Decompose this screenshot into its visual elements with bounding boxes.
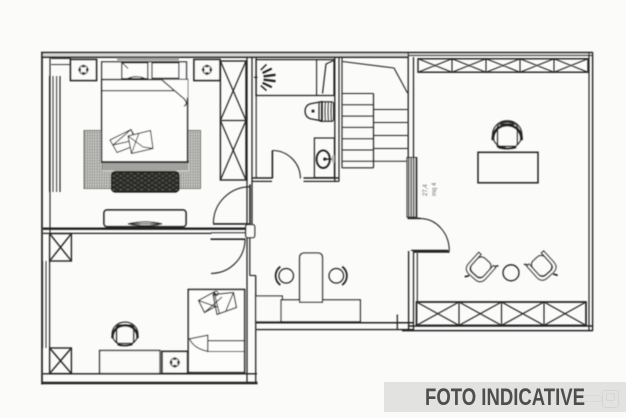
svg-text:27,4: 27,4	[423, 184, 429, 196]
svg-text:mq 4: mq 4	[432, 182, 438, 196]
